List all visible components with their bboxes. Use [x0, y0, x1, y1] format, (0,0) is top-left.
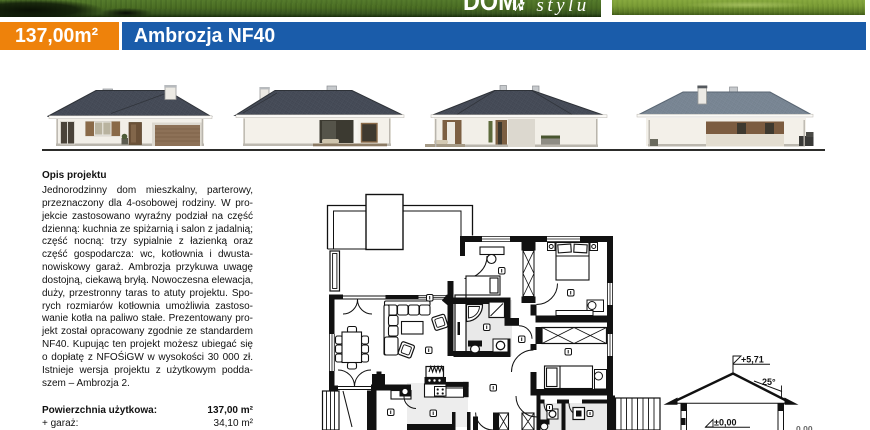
- svg-text:25°: 25°: [762, 377, 776, 387]
- svg-text:±0,00: ±0,00: [714, 418, 736, 428]
- svg-text:0,00: 0,00: [796, 424, 813, 430]
- svg-text:+5,71: +5,71: [741, 355, 764, 365]
